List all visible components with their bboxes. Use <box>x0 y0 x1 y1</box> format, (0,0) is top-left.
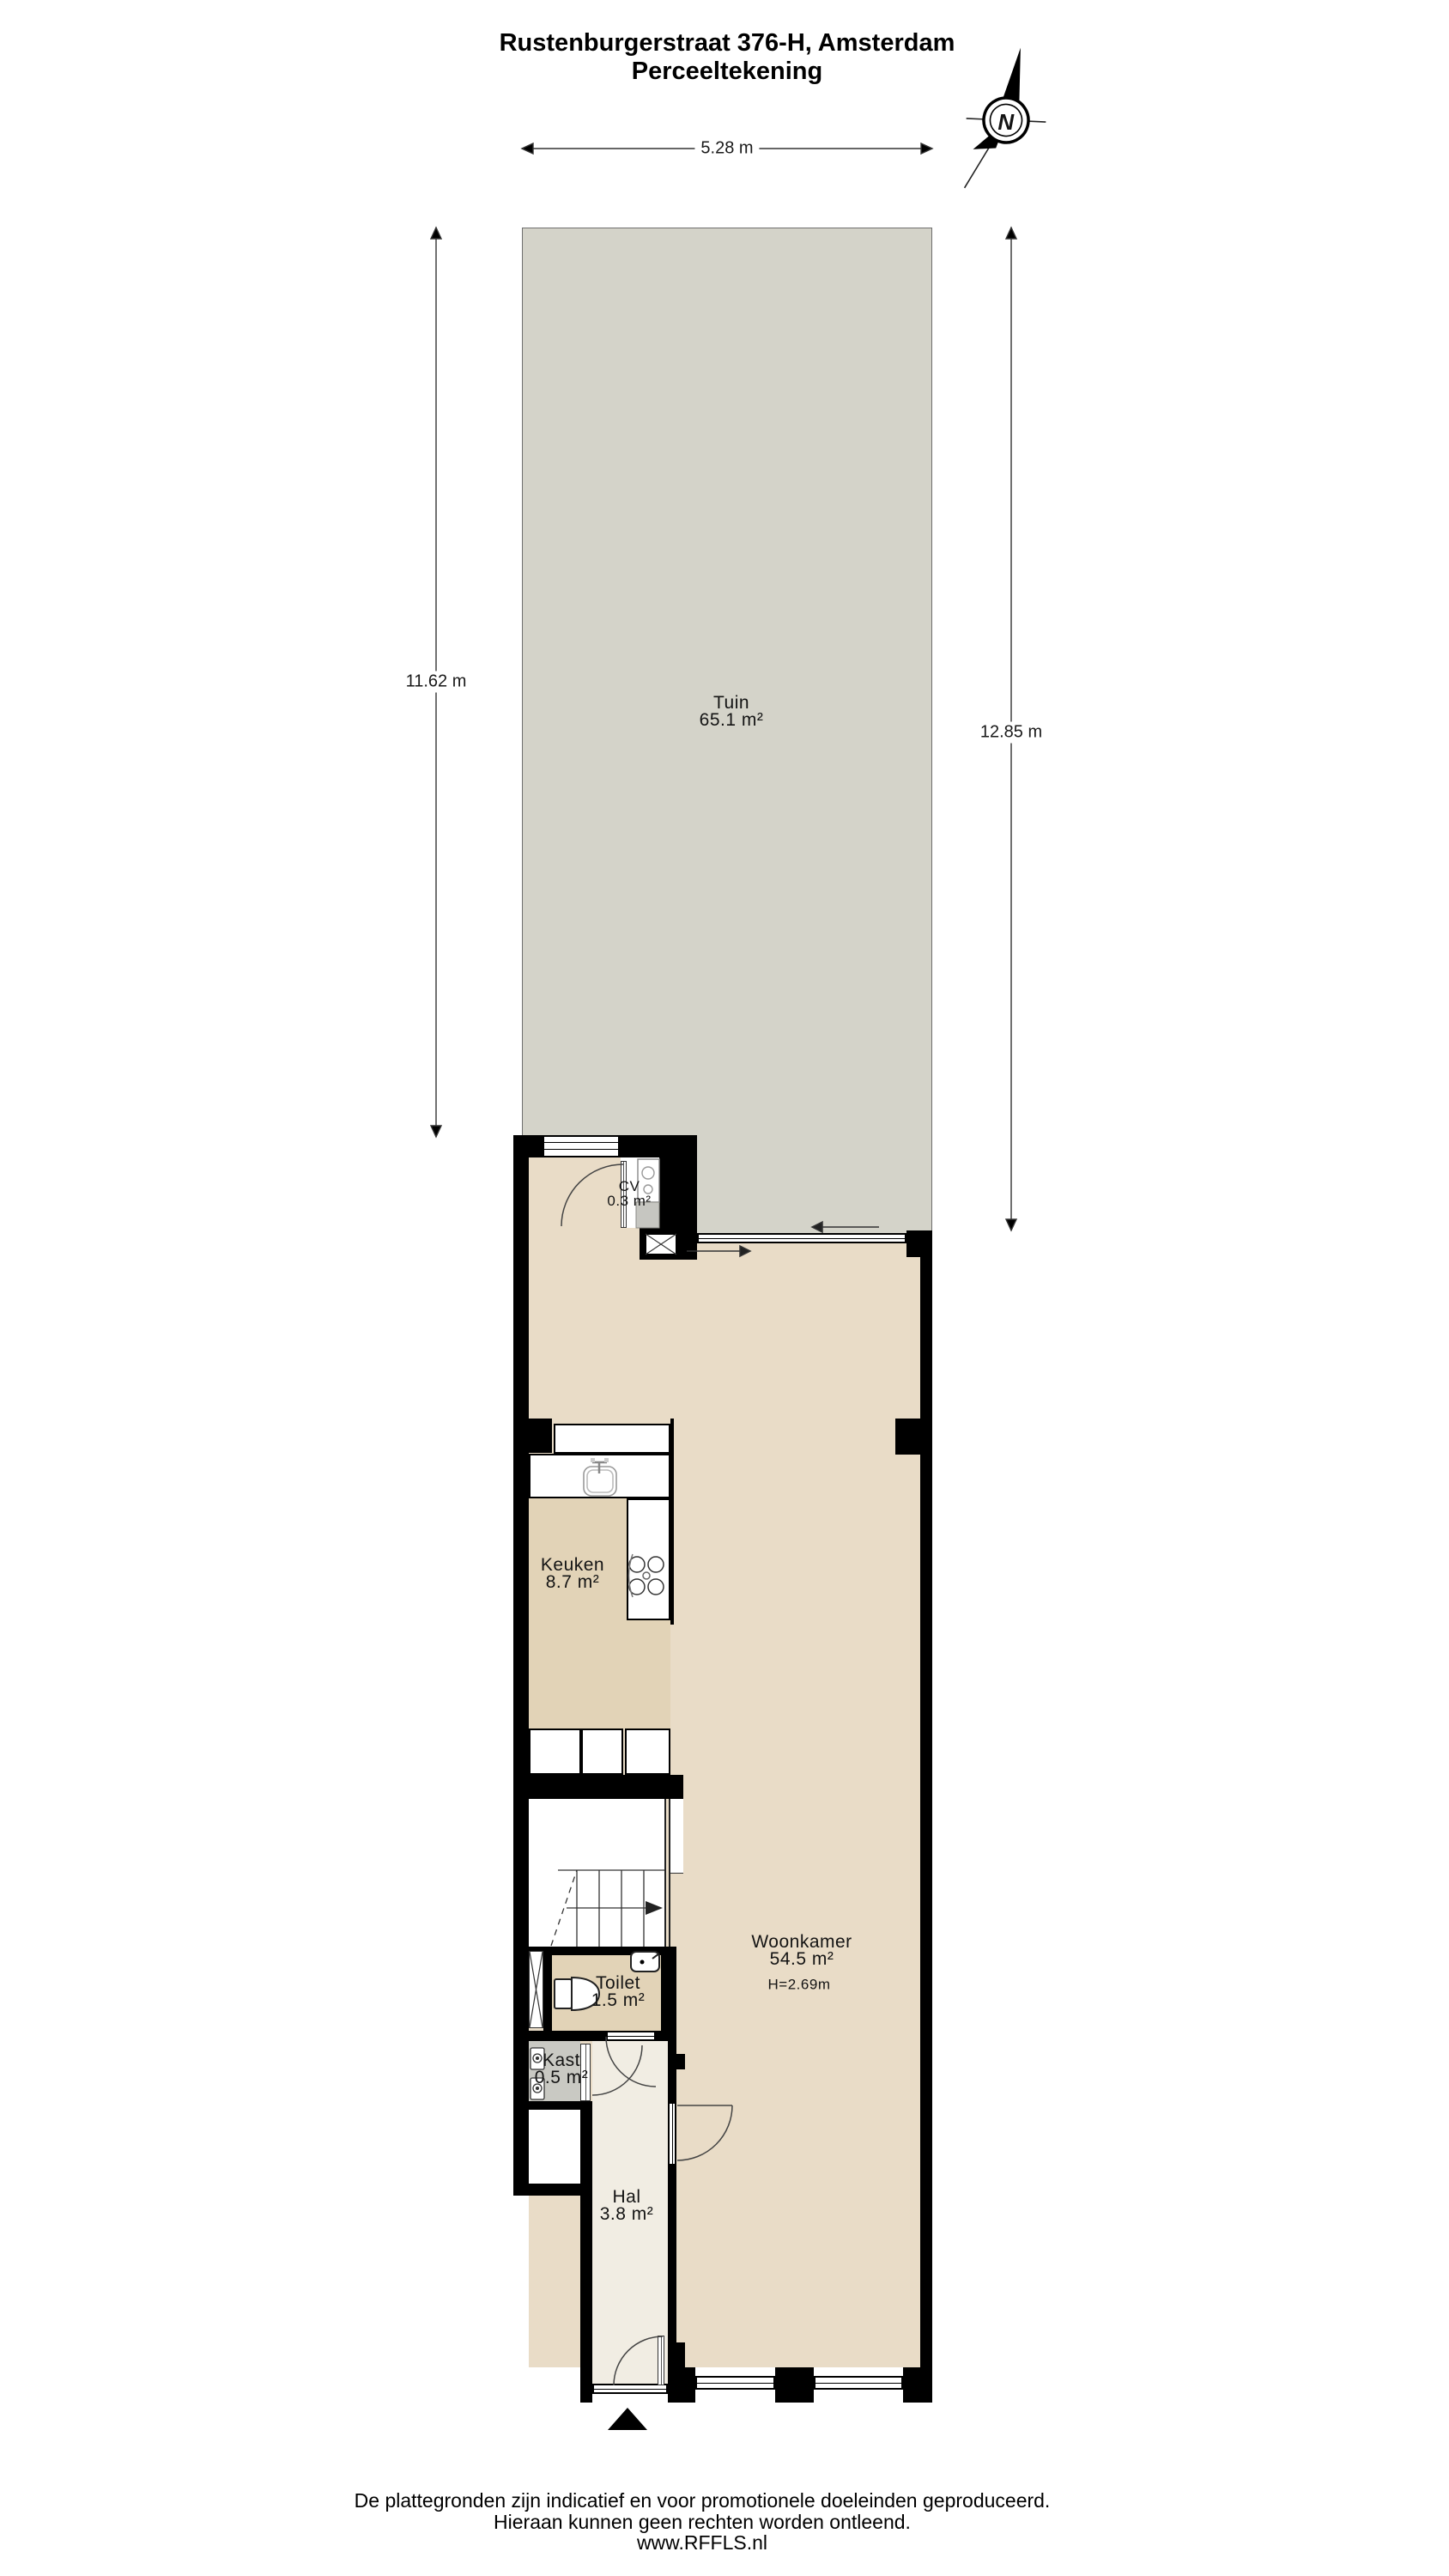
room-label-cv: CV 0.3 m² <box>607 1179 651 1208</box>
stove-icon <box>629 1554 664 1597</box>
room-label-woonkamer: Woonkamer 54.5 m² <box>751 1934 852 1968</box>
kitchen-sink-icon <box>584 1458 616 1496</box>
compass-north-label: N <box>997 113 1014 131</box>
footer-line-1: De plattegronden zijn indicatief en voor… <box>355 2490 1051 2512</box>
room-label-kast: Kast 0.5 m² <box>535 2052 589 2087</box>
footer-disclaimer: De plattegronden zijn indicatief en voor… <box>355 2490 1051 2554</box>
toilet-basin-icon <box>631 1952 659 1971</box>
front-door-arc <box>614 2336 663 2385</box>
dimension-right-label: 12.85 m <box>974 722 1048 744</box>
stairs-icon <box>551 1870 664 1947</box>
room-area: 65.1 m² <box>700 712 764 729</box>
room-label-hal: Hal 3.8 m² <box>600 2189 654 2223</box>
entrance-marker <box>608 2408 647 2430</box>
sliding-door-arrows <box>687 1222 879 1256</box>
room-area: 3.8 m² <box>600 2206 654 2223</box>
room-label-keuken: Keuken 8.7 m² <box>541 1557 604 1591</box>
dimension-left-label: 11.62 m <box>400 671 473 693</box>
linework-layer <box>0 0 1449 2576</box>
dimension-top-label: 5.28 m <box>694 138 759 160</box>
room-area: 1.5 m² <box>591 1992 646 2009</box>
toilet-door-arc <box>606 2037 656 2087</box>
floorplan-canvas: Rustenburgerstraat 376-H, Amsterdam Perc… <box>0 0 1449 2576</box>
footer-website: www.RFFLS.nl <box>355 2532 1051 2554</box>
room-ceiling-height: H=2.69m <box>768 1978 831 1992</box>
room-area: 0.3 m² <box>607 1194 651 1208</box>
room-area: 8.7 m² <box>541 1574 604 1591</box>
closet-door-arc <box>592 2045 642 2095</box>
room-area: 0.5 m² <box>535 2069 589 2087</box>
room-label-tuin: Tuin 65.1 m² <box>700 695 764 729</box>
footer-line-2: Hieraan kunnen geen rechten worden ontle… <box>355 2512 1051 2533</box>
livingroom-door-arc <box>677 2105 732 2160</box>
stairs-up-arrow <box>646 1901 663 1915</box>
room-label-toilet: Toilet 1.5 m² <box>591 1975 646 2009</box>
room-area: 54.5 m² <box>751 1951 852 1968</box>
